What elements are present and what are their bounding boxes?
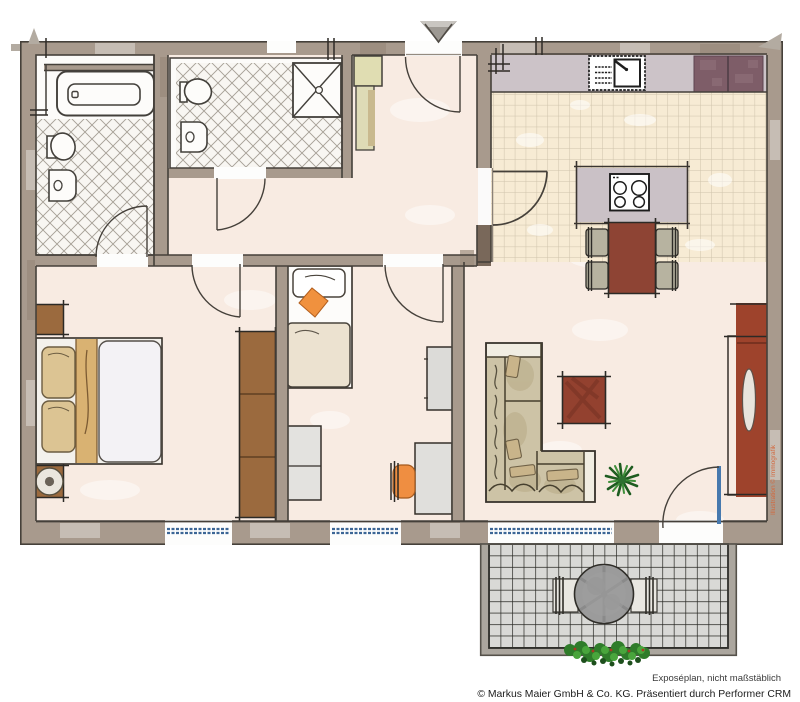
svg-text:Illustration © Immografik: Illustration © Immografik [769,444,777,515]
svg-text:© Markus Maier GmbH & Co. KG.: © Markus Maier GmbH & Co. KG. Präsentier… [477,689,791,700]
svg-text:Exposéplan, nicht maßstäblich: Exposéplan, nicht maßstäblich [652,673,781,684]
